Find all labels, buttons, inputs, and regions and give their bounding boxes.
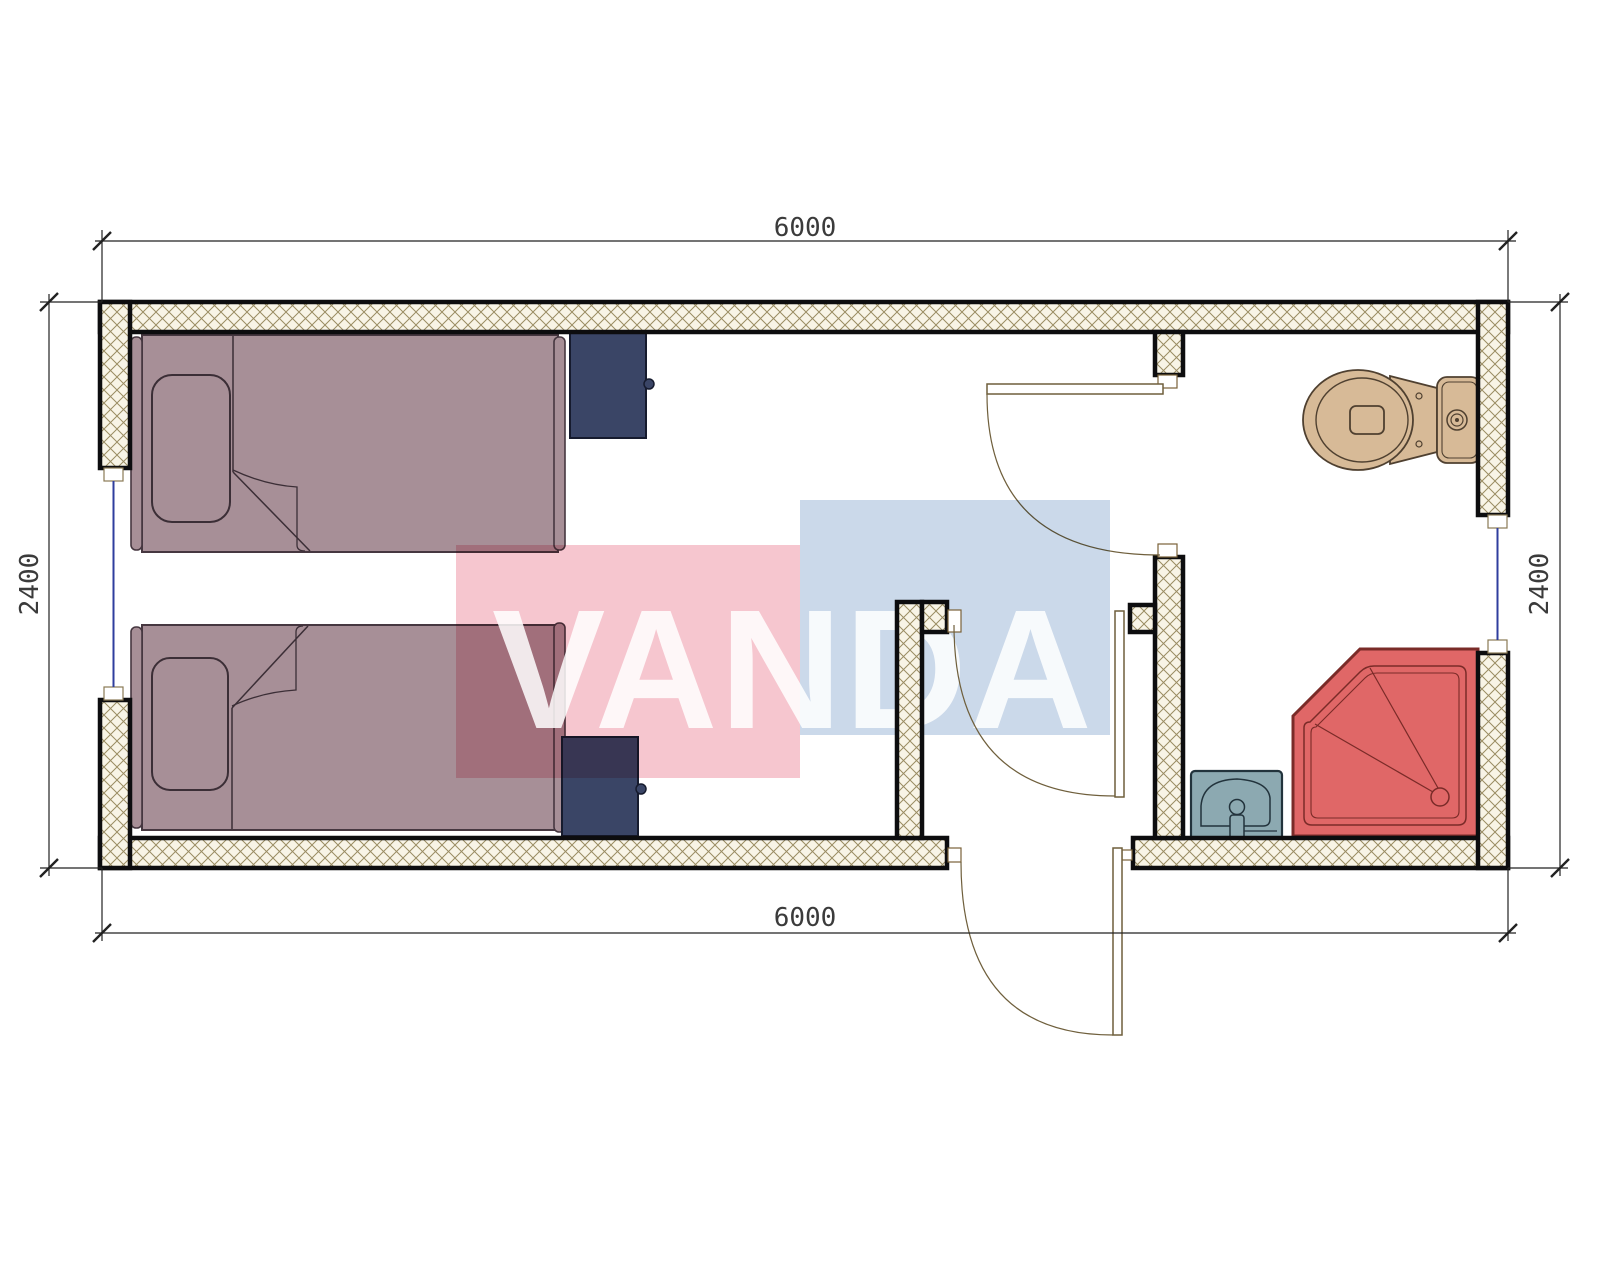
door-hallway-swing (954, 625, 1115, 796)
floor-plan-canvas: 6000 6000 2400 2400 VANDA (0, 0, 1600, 1280)
wall-hallway-partition (897, 602, 922, 838)
interior-walls (897, 602, 947, 838)
door-hallway-leaf (1115, 611, 1124, 797)
wall-hallway-jamb (922, 602, 947, 632)
floor-plan-overlay-drawing (0, 0, 1600, 1280)
door-hallway (948, 610, 1124, 797)
